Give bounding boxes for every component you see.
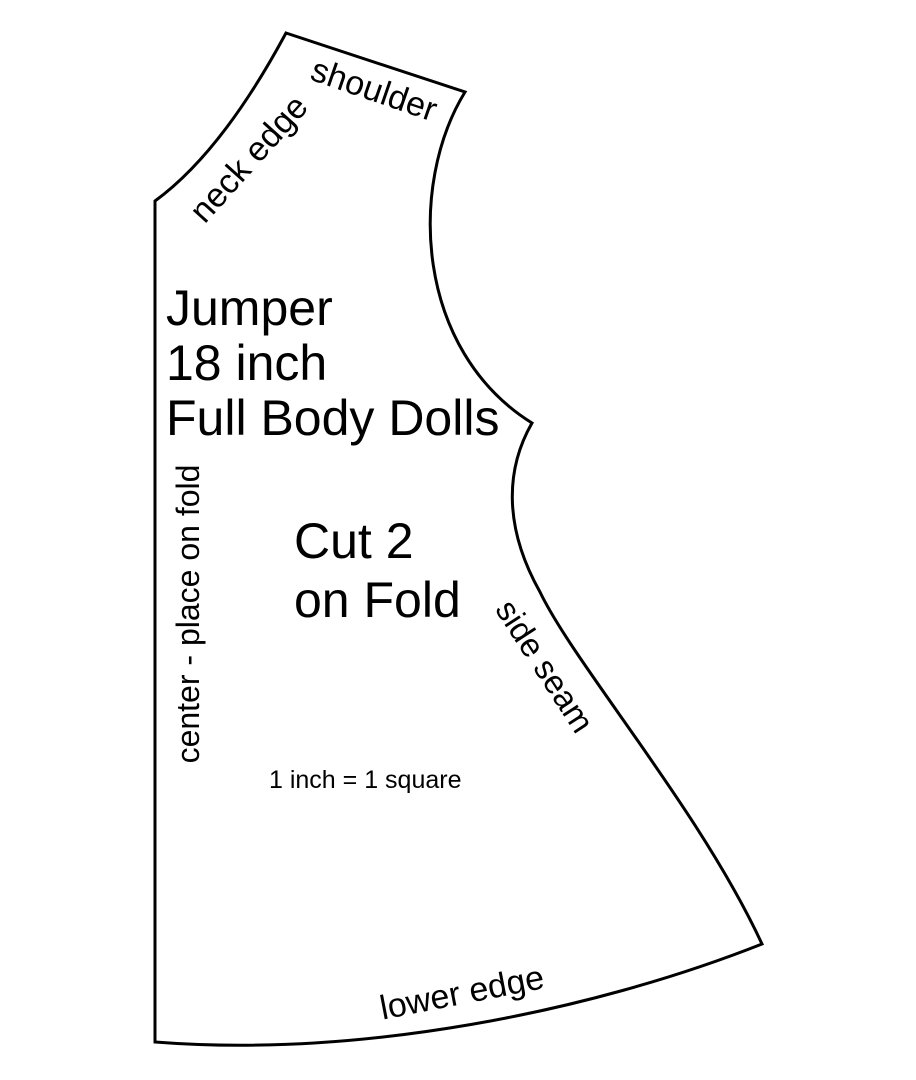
pattern-title-line-1: Jumper <box>166 281 499 336</box>
cut-instruction-line-1: Cut 2 <box>294 512 461 571</box>
scale-note: 1 inch = 1 square <box>269 766 462 794</box>
pattern-title-line-2: 18 inch <box>166 336 499 391</box>
pattern-title: Jumper 18 inch Full Body Dolls <box>166 281 499 446</box>
pattern-sheet: shoulder neck edge side seam lower edge … <box>0 0 916 1080</box>
center-place-on-fold-label: center - place on fold <box>172 465 204 764</box>
cut-instruction-line-2: on Fold <box>294 571 461 630</box>
pattern-title-line-3: Full Body Dolls <box>166 391 499 446</box>
cut-instruction: Cut 2 on Fold <box>294 512 461 630</box>
